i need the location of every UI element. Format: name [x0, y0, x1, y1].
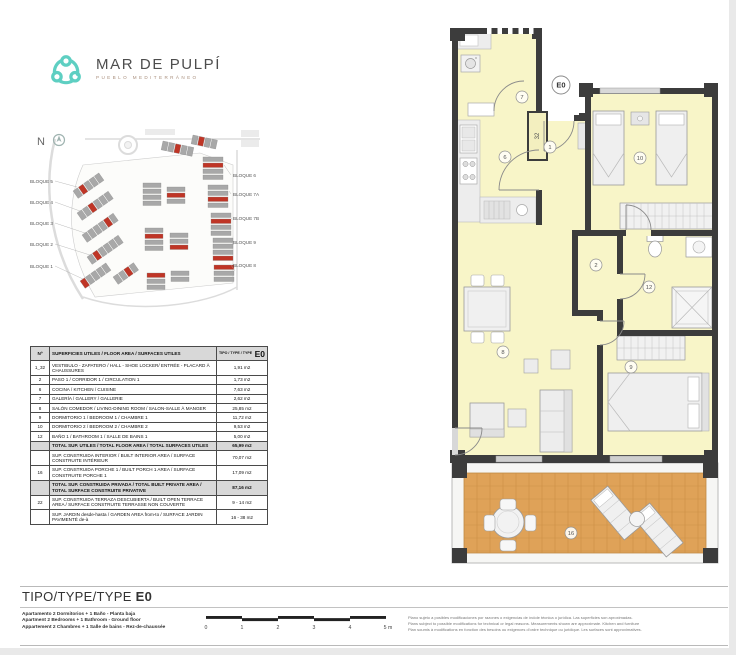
room-label-1: 1: [544, 141, 556, 153]
room-label-9: 9: [625, 361, 637, 373]
stove: [460, 158, 477, 184]
room-label-10: 10: [634, 152, 646, 164]
header-type-value: E0: [255, 349, 265, 359]
toilet: [647, 235, 663, 257]
row-no: 1_32: [31, 361, 50, 376]
table-row: 7GALERÍA / GALLERY / GALLERIE2,62 m2: [31, 394, 268, 403]
room-label-16: 16: [565, 527, 577, 539]
row-no: 12: [31, 432, 50, 441]
row-no: 22: [31, 495, 50, 510]
kitchen-sink: [460, 125, 477, 153]
header-number: Nº: [31, 347, 50, 361]
sofa: [540, 390, 572, 452]
shower: [672, 287, 712, 328]
row-no: [31, 510, 50, 525]
single-bed-2: [656, 111, 687, 185]
page-edge-right: [729, 0, 736, 655]
row-no: [31, 441, 50, 450]
row-desc: SUP. JARDIN desde-hasta / GARDEN AREA fr…: [50, 510, 217, 525]
scale-label-4: 4: [349, 625, 352, 631]
galeria-cupboard: [468, 103, 494, 116]
scale-label-0: 0: [205, 625, 208, 631]
table-row: 16SUP. CONSTRUIDA PORCHE 1 / BUILT PORCH…: [31, 465, 268, 480]
bedroom-1-furniture: [608, 373, 709, 431]
row-no: 7: [31, 394, 50, 403]
room-label-12: 12: [643, 281, 655, 293]
wardrobe-bedroom-2: [620, 203, 713, 229]
row-desc: SUP. CONSTRUIDA INTERIOR / BUILT INTERIO…: [50, 451, 217, 466]
brand-logo: MAR DE PULPÍ PUEBLO MEDITERRÁNEO: [45, 50, 221, 92]
header-description: SUPERFICIES UTILES / FLOOR AREA / SURFAC…: [50, 347, 217, 361]
svg-text:1: 1: [548, 145, 551, 151]
footer-divider-top: [20, 586, 728, 587]
row-desc: VESTIBULO - ZAPATERO / HALL - SHOE LOCKE…: [50, 361, 217, 376]
row-desc: SUP. CONSTRUIDA PORCHE 1 / BUILT PORCH 1…: [50, 465, 217, 480]
site-plan: N: [25, 125, 270, 320]
scale-label-1: 1: [241, 625, 244, 631]
svg-text:9: 9: [629, 365, 632, 371]
row-no: 2: [31, 375, 50, 384]
label-bloque-3: BLOQUE 3: [30, 221, 53, 226]
row-no: 10: [31, 422, 50, 431]
apartment-description-fr: Appartement 2 Chambres + 1 Salle de bain…: [22, 625, 165, 631]
row-no: [31, 451, 50, 466]
svg-text:12: 12: [646, 285, 652, 291]
table-row: 1_32VESTIBULO - ZAPATERO / HALL - SHOE L…: [31, 361, 268, 376]
svg-text:8: 8: [501, 350, 504, 356]
washbasin: [686, 237, 712, 257]
table-row: 2PASO 1 / CORRIDOR 1 / CIRCULATION 11,73…: [31, 375, 268, 384]
room-label-7: 7: [516, 91, 528, 103]
page-title-words: TIPO/TYPE/TYPE: [22, 589, 132, 604]
brand-title: MAR DE PULPÍ: [96, 56, 221, 73]
row-desc: TOTAL SUP. UTILES / TOTAL FLOOR AREA / T…: [50, 441, 217, 450]
scale-bar: 0 1 2 3 4 5 m: [200, 609, 400, 633]
row-value: 9 - 14 m2: [217, 495, 268, 510]
label-bloque-5: BLOQUE 5: [30, 179, 53, 184]
table-row: 8SALÓN COMEDOR / LIVING-DINING ROOM / SA…: [31, 404, 268, 413]
unit-type-text: E0: [556, 81, 565, 90]
table-row: 22SUP. CONSTRUIDA TERRAZA DESCUBIERTA / …: [31, 495, 268, 510]
label-bloque-7b: BLOQUE 7B: [233, 216, 259, 221]
label-bloque-7a: BLOQUE 7A: [233, 192, 260, 197]
table-total-row: TOTAL SUP. CONSTRUIDA PRIVADA / TOTAL BU…: [31, 480, 268, 495]
room-label-2: 2: [590, 259, 602, 271]
row-value: 16 - 38 m2: [217, 510, 268, 525]
row-desc: COCINA / KITCHEN / CUISINE: [50, 385, 217, 394]
row-value: 1,91 m2: [217, 361, 268, 376]
row-desc: PASO 1 / CORRIDOR 1 / CIRCULATION 1: [50, 375, 217, 384]
row-value: 11,72 m2: [217, 413, 268, 422]
label-bloque-6: BLOQUE 6: [233, 173, 256, 178]
label-bloque-8: BLOQUE 8: [233, 263, 256, 268]
living-terrace-door: [496, 456, 542, 462]
scale-label-5: 5 m: [384, 625, 393, 631]
table-row: 10DORMITORIO 2 / BEDROOM 2 / CHAMBRE 29,…: [31, 422, 268, 431]
row-value: 17,09 m2: [217, 465, 268, 480]
row-desc: SALÓN COMEDOR / LIVING-DINING ROOM / SAL…: [50, 404, 217, 413]
apartment-description: Apartamento 2 Dormitorios + 1 Baño - Pla…: [22, 612, 165, 631]
room-label-8: 8: [497, 346, 509, 358]
shaft-label: 32: [535, 132, 541, 139]
svg-text:7: 7: [520, 95, 523, 101]
terrace: [452, 463, 718, 563]
row-value: 1,73 m2: [217, 375, 268, 384]
table-row: 9DORMITORIO 1 / BEDROOM 1 / CHAMBRE 111,…: [31, 413, 268, 422]
unit-type-label: E0: [552, 76, 570, 94]
table-header-row: Nº SUPERFICIES UTILES / FLOOR AREA / SUR…: [31, 347, 268, 361]
label-bloque-1: BLOQUE 1: [30, 264, 53, 269]
table-row: 12BAÑO 1 / BATHROOM 1 / SALLE DE BAINS 1…: [31, 432, 268, 441]
row-no: 8: [31, 404, 50, 413]
scale-label-3: 3: [313, 625, 316, 631]
surface-area-table: Nº SUPERFICIES UTILES / FLOOR AREA / SUR…: [30, 346, 268, 525]
row-value: 5,00 m2: [217, 432, 268, 441]
single-bed-1: [593, 111, 624, 185]
row-desc: SUP. CONSTRUIDA TERRAZA DESCUBIERTA / BU…: [50, 495, 217, 510]
disclaimer-fr: Plan soumis à modifications en fonction …: [408, 627, 734, 633]
label-bloque-4: BLOQUE 4: [30, 200, 53, 205]
row-no: 9: [31, 413, 50, 422]
side-table-2: [524, 359, 538, 373]
room-label-6: 6: [499, 151, 511, 163]
plan-sheet: MAR DE PULPÍ PUEBLO MEDITERRÁNEO N: [0, 0, 736, 655]
legal-disclaimer: Plano sujeto a posibles modificaciones p…: [408, 615, 734, 634]
row-desc: BAÑO 1 / BATHROOM 1 / SALLE DE BAINS 1: [50, 432, 217, 441]
side-table-1: [551, 350, 570, 369]
north-label: N: [37, 136, 45, 148]
row-no: [31, 480, 50, 495]
row-desc: DORMITORIO 1 / BEDROOM 1 / CHAMBRE 1: [50, 413, 217, 422]
page-title: TIPO/TYPE/TYPEE0: [22, 589, 152, 604]
row-value: 25,85 m2: [217, 404, 268, 413]
row-desc: DORMITORIO 2 / BEDROOM 2 / CHAMBRE 2: [50, 422, 217, 431]
svg-text:16: 16: [568, 531, 574, 537]
triskelion-logo-icon: [45, 50, 87, 92]
table-total-row: TOTAL SUP. UTILES / TOTAL FLOOR AREA / T…: [31, 441, 268, 450]
page-title-type: E0: [136, 589, 153, 604]
row-value: 70,07 m2: [217, 451, 268, 466]
row-value: 9,53 m2: [217, 422, 268, 431]
double-bed: [608, 373, 709, 431]
nightstand: [631, 112, 649, 125]
svg-text:2: 2: [594, 263, 597, 269]
bedroom-2-window: [600, 88, 660, 94]
row-desc: GALERÍA / GALLERY / GALLERIE: [50, 394, 217, 403]
table-row: 6COCINA / KITCHEN / CUISINE7,63 m2: [31, 385, 268, 394]
living-side-door-opening: [452, 428, 458, 455]
scale-label-2: 2: [277, 625, 280, 631]
label-bloque-9: BLOQUE 9: [233, 240, 256, 245]
page-edge-bottom: [0, 648, 736, 655]
row-no: 16: [31, 465, 50, 480]
label-bloque-2: BLOQUE 2: [30, 242, 53, 247]
washing-machine: [461, 55, 480, 72]
footer-divider-bottom: [20, 645, 728, 646]
hall-shoe-locker: [578, 123, 586, 149]
svg-text:6: 6: [503, 155, 506, 161]
row-value: 65,99 m2: [217, 441, 268, 450]
brand-subtitle: PUEBLO MEDITERRÁNEO: [96, 75, 221, 80]
bedroom-1-window: [610, 456, 662, 462]
footer-divider-mid: [20, 607, 728, 608]
table-row: SUP. CONSTRUIDA INTERIOR / BUILT INTERIO…: [31, 451, 268, 466]
row-desc: TOTAL SUP. CONSTRUIDA PRIVADA / TOTAL BU…: [50, 480, 217, 495]
row-value: 2,62 m2: [217, 394, 268, 403]
table-row: SUP. JARDIN desde-hasta / GARDEN AREA fr…: [31, 510, 268, 525]
row-no: 6: [31, 385, 50, 394]
header-type: TIPO / TYPE / TYPE E0: [217, 347, 268, 361]
north-indicator: N: [37, 135, 65, 149]
floor-plan: 32 E0 7 6 1 2 8 9 10 12 16: [448, 25, 720, 570]
wardrobe-bedroom-1: [617, 336, 685, 360]
row-value: 7,63 m2: [217, 385, 268, 394]
header-type-words: TIPO / TYPE / TYPE: [219, 351, 233, 355]
row-value: 87,16 m2: [217, 480, 268, 495]
svg-text:10: 10: [637, 156, 643, 162]
terrace-side-table: [630, 512, 645, 527]
